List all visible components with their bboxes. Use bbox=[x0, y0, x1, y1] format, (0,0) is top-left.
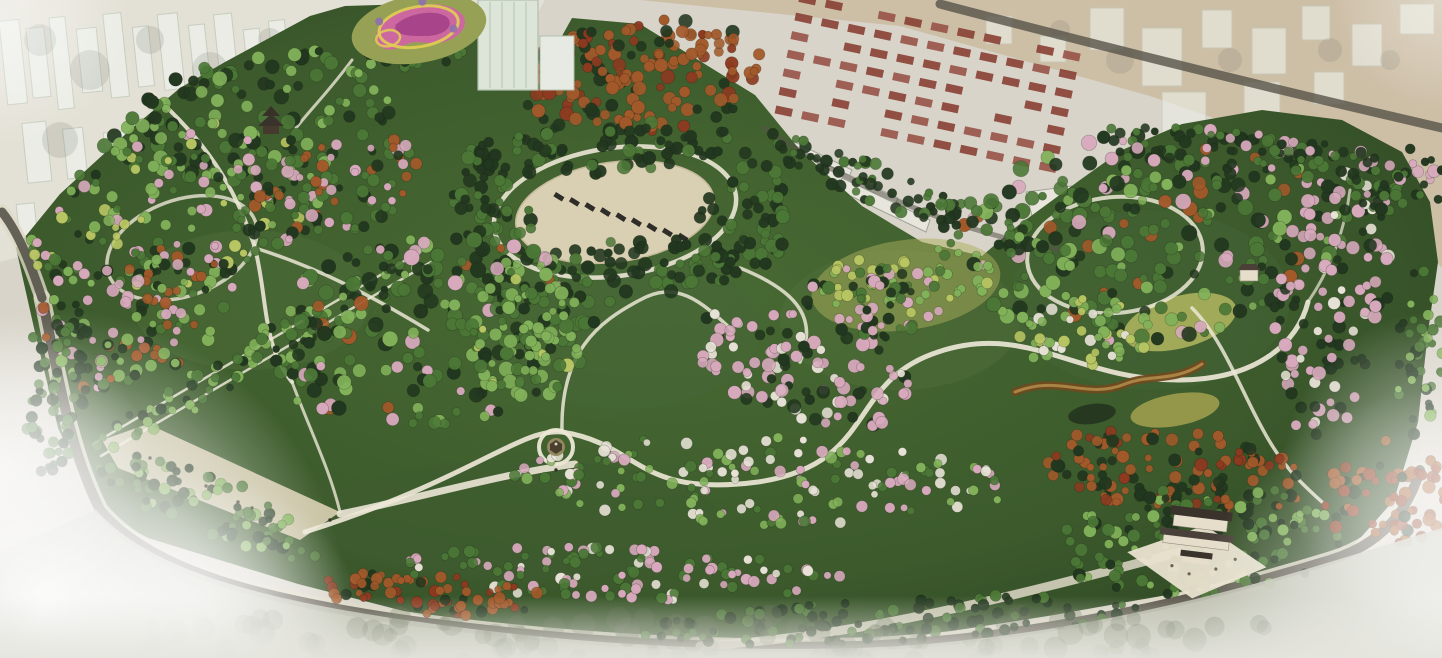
tree bbox=[1110, 176, 1125, 191]
tree bbox=[1088, 309, 1097, 318]
tree bbox=[386, 413, 399, 426]
tree bbox=[808, 485, 818, 495]
tree bbox=[1218, 253, 1233, 268]
tree bbox=[514, 295, 521, 302]
tree bbox=[1251, 213, 1266, 228]
tree bbox=[727, 44, 736, 53]
tree bbox=[1046, 275, 1061, 290]
tree bbox=[254, 190, 266, 202]
tree bbox=[541, 331, 551, 341]
tree bbox=[583, 63, 593, 73]
tree bbox=[846, 316, 853, 323]
tree bbox=[228, 283, 237, 292]
tree bbox=[1382, 292, 1393, 303]
tree bbox=[450, 233, 462, 245]
tree bbox=[1194, 251, 1205, 262]
tree bbox=[857, 295, 865, 303]
tree bbox=[1049, 231, 1063, 245]
tree bbox=[363, 245, 373, 255]
tree bbox=[416, 577, 426, 587]
tree bbox=[1072, 215, 1087, 230]
tree bbox=[1005, 240, 1013, 248]
tree bbox=[1380, 252, 1393, 265]
tree bbox=[1169, 471, 1181, 483]
tree bbox=[111, 147, 120, 156]
tree bbox=[955, 249, 963, 257]
tree bbox=[982, 277, 993, 288]
tree bbox=[816, 164, 825, 173]
tree bbox=[1058, 176, 1068, 186]
tree bbox=[799, 516, 810, 527]
tree bbox=[493, 567, 503, 577]
tree bbox=[711, 361, 722, 372]
tree bbox=[1122, 433, 1131, 442]
tree bbox=[863, 306, 872, 315]
tree bbox=[1025, 191, 1039, 205]
tree bbox=[1062, 524, 1073, 535]
tree bbox=[281, 165, 294, 178]
tree bbox=[1177, 312, 1187, 322]
tree bbox=[99, 237, 107, 245]
tree bbox=[1046, 303, 1058, 315]
tree bbox=[1298, 346, 1308, 356]
tree bbox=[935, 468, 945, 478]
tree bbox=[354, 69, 363, 78]
tree bbox=[1123, 153, 1132, 162]
hill-pavilion bbox=[1238, 264, 1260, 281]
tree bbox=[207, 119, 217, 129]
tree bbox=[172, 259, 183, 270]
tree bbox=[800, 437, 807, 444]
tree bbox=[1258, 274, 1269, 285]
tree bbox=[637, 544, 648, 555]
tree bbox=[526, 223, 536, 233]
tree bbox=[316, 362, 325, 371]
tree bbox=[711, 252, 721, 262]
tree bbox=[1094, 265, 1107, 278]
tree bbox=[833, 166, 845, 178]
tree bbox=[435, 571, 447, 583]
tree bbox=[686, 498, 697, 509]
tree bbox=[768, 310, 779, 321]
tree bbox=[1330, 151, 1340, 161]
tree bbox=[1117, 450, 1130, 463]
tree bbox=[1052, 452, 1061, 461]
tree bbox=[1165, 242, 1178, 255]
tree bbox=[89, 221, 101, 233]
tree bbox=[1073, 446, 1083, 456]
tree bbox=[776, 238, 789, 251]
tree bbox=[137, 216, 144, 223]
tree bbox=[618, 454, 630, 466]
tree bbox=[707, 203, 719, 215]
tree bbox=[1002, 185, 1017, 200]
tree bbox=[659, 15, 669, 25]
tree bbox=[748, 576, 759, 587]
tree bbox=[310, 176, 321, 187]
tree bbox=[229, 133, 244, 148]
tree bbox=[1141, 124, 1150, 133]
tree bbox=[531, 375, 541, 385]
tree bbox=[265, 60, 279, 74]
tree bbox=[382, 402, 394, 414]
tree bbox=[767, 128, 778, 139]
tree bbox=[1255, 130, 1263, 138]
tree bbox=[370, 581, 379, 590]
tree bbox=[188, 76, 198, 86]
tree bbox=[287, 368, 298, 379]
tree bbox=[1076, 574, 1085, 583]
tree bbox=[185, 171, 197, 183]
tree bbox=[286, 235, 293, 242]
tree bbox=[1289, 301, 1299, 311]
tree bbox=[540, 472, 551, 483]
tree bbox=[923, 267, 934, 278]
tree bbox=[509, 470, 520, 481]
tree bbox=[743, 209, 753, 219]
tree bbox=[340, 212, 353, 225]
tree bbox=[1162, 495, 1170, 503]
tree bbox=[1132, 142, 1144, 154]
tree bbox=[402, 353, 413, 364]
ghost-building bbox=[1252, 28, 1286, 74]
tree bbox=[745, 499, 755, 509]
tree bbox=[1286, 225, 1299, 238]
tree bbox=[196, 204, 205, 213]
tree bbox=[289, 146, 298, 155]
tree bbox=[332, 401, 347, 416]
tree bbox=[1302, 171, 1314, 183]
tree bbox=[368, 196, 377, 205]
tree bbox=[1116, 148, 1124, 156]
tree bbox=[280, 115, 295, 130]
tree bbox=[532, 388, 541, 397]
tree bbox=[202, 286, 209, 293]
tree bbox=[259, 238, 268, 247]
tree bbox=[930, 208, 938, 216]
tree bbox=[947, 239, 955, 247]
tree bbox=[848, 412, 858, 422]
tree bbox=[702, 554, 711, 563]
tree bbox=[692, 254, 701, 263]
tree bbox=[1108, 351, 1117, 360]
tree bbox=[762, 358, 776, 372]
tree bbox=[1071, 557, 1081, 567]
tree bbox=[1359, 228, 1367, 236]
tree bbox=[524, 206, 533, 215]
tree bbox=[1021, 272, 1029, 280]
tree bbox=[507, 239, 521, 253]
tree bbox=[1083, 156, 1097, 170]
tree bbox=[901, 504, 908, 511]
tree bbox=[521, 366, 530, 375]
tree bbox=[986, 297, 1001, 312]
tree bbox=[865, 196, 875, 206]
tree bbox=[887, 189, 896, 198]
tree bbox=[824, 572, 831, 579]
tree bbox=[896, 294, 906, 304]
tree bbox=[288, 48, 302, 62]
tree bbox=[835, 149, 844, 158]
tree bbox=[303, 337, 314, 348]
tree bbox=[692, 62, 701, 71]
tree bbox=[516, 571, 524, 579]
tree bbox=[668, 103, 677, 112]
tree bbox=[1108, 456, 1117, 465]
tree bbox=[345, 277, 360, 292]
tree bbox=[856, 450, 865, 459]
tree bbox=[1154, 263, 1166, 275]
tree bbox=[452, 266, 462, 276]
tree bbox=[475, 339, 485, 349]
tree bbox=[1202, 144, 1211, 153]
tree bbox=[1360, 307, 1369, 316]
tree bbox=[753, 49, 765, 61]
tree bbox=[273, 346, 280, 353]
tree bbox=[561, 164, 572, 175]
tree bbox=[656, 83, 664, 91]
tree bbox=[126, 112, 139, 125]
tree bbox=[398, 159, 408, 169]
tree bbox=[220, 200, 227, 207]
tree bbox=[1279, 338, 1293, 352]
tree bbox=[907, 178, 914, 185]
tree bbox=[604, 249, 612, 257]
tree bbox=[1186, 129, 1195, 138]
tree bbox=[182, 242, 195, 255]
tree bbox=[728, 570, 736, 578]
tree bbox=[549, 308, 556, 315]
tree bbox=[1369, 300, 1381, 312]
tree bbox=[1277, 140, 1287, 150]
tree bbox=[423, 265, 432, 274]
tree bbox=[1247, 457, 1258, 468]
tree bbox=[519, 324, 529, 334]
tree bbox=[336, 185, 343, 192]
tree bbox=[781, 341, 792, 352]
tree bbox=[760, 258, 772, 270]
tree bbox=[131, 312, 141, 322]
tree bbox=[876, 281, 885, 290]
tree bbox=[1192, 176, 1206, 190]
tree bbox=[397, 577, 404, 584]
tree bbox=[493, 407, 503, 417]
tree bbox=[1121, 165, 1132, 176]
tree bbox=[883, 264, 892, 273]
tree bbox=[113, 205, 121, 213]
tree bbox=[1390, 189, 1402, 201]
tree bbox=[440, 419, 450, 429]
tree bbox=[795, 162, 803, 170]
tree bbox=[333, 326, 346, 339]
tree bbox=[1102, 523, 1115, 536]
tree bbox=[157, 284, 166, 293]
tree bbox=[944, 212, 956, 224]
tree bbox=[1109, 135, 1120, 146]
tree bbox=[1333, 255, 1341, 263]
tree bbox=[1130, 204, 1141, 215]
tree bbox=[604, 268, 617, 281]
tree bbox=[1296, 355, 1304, 363]
tree bbox=[1044, 337, 1054, 347]
tree bbox=[779, 145, 787, 153]
tree bbox=[1244, 443, 1256, 455]
tree bbox=[486, 380, 497, 391]
tree bbox=[103, 215, 114, 226]
tree bbox=[606, 99, 618, 111]
tree bbox=[1294, 279, 1305, 290]
tree bbox=[1227, 159, 1237, 169]
tree bbox=[399, 190, 406, 197]
tree bbox=[698, 206, 706, 214]
tree bbox=[564, 543, 573, 552]
tree bbox=[1126, 335, 1135, 344]
tree bbox=[1119, 137, 1127, 145]
tree bbox=[664, 158, 675, 169]
tree bbox=[318, 144, 325, 151]
tree bbox=[739, 235, 748, 244]
tree bbox=[331, 139, 342, 150]
tree bbox=[699, 517, 708, 526]
tree bbox=[572, 344, 581, 353]
tree bbox=[525, 287, 537, 299]
tree bbox=[352, 258, 360, 266]
tree bbox=[474, 359, 488, 373]
tree bbox=[1190, 270, 1199, 279]
tree bbox=[291, 361, 299, 369]
tree bbox=[382, 331, 398, 347]
city-tree-smudge bbox=[1318, 38, 1342, 62]
tree bbox=[1097, 131, 1110, 144]
tree bbox=[1169, 454, 1181, 466]
tree bbox=[853, 469, 863, 479]
tree bbox=[1286, 282, 1295, 291]
tree bbox=[679, 86, 690, 97]
tree bbox=[401, 271, 409, 279]
tree bbox=[649, 276, 662, 289]
tree bbox=[330, 197, 338, 205]
tree bbox=[712, 241, 722, 251]
tree bbox=[315, 188, 323, 196]
tree bbox=[324, 56, 338, 70]
tree bbox=[839, 157, 850, 168]
tree bbox=[268, 221, 276, 229]
tree bbox=[265, 202, 275, 212]
tree bbox=[112, 224, 119, 231]
tree bbox=[782, 328, 792, 338]
city-tree-smudge bbox=[1218, 48, 1242, 72]
tree bbox=[1098, 470, 1107, 479]
tree bbox=[1183, 154, 1194, 165]
tree bbox=[120, 297, 131, 308]
tree bbox=[196, 271, 206, 281]
tree bbox=[315, 47, 323, 55]
tree bbox=[831, 265, 841, 275]
tree bbox=[1265, 174, 1276, 185]
tree bbox=[994, 240, 1004, 250]
tree bbox=[1380, 180, 1389, 189]
tree bbox=[1106, 435, 1119, 448]
tree bbox=[681, 438, 693, 450]
tree bbox=[336, 97, 344, 105]
tree bbox=[327, 154, 335, 162]
tree bbox=[686, 48, 698, 60]
tree bbox=[188, 224, 196, 232]
tree bbox=[366, 59, 376, 69]
tree bbox=[1124, 184, 1138, 198]
tree bbox=[843, 265, 851, 273]
tree bbox=[728, 386, 742, 400]
tree bbox=[542, 565, 550, 573]
tree bbox=[1204, 469, 1212, 477]
tree bbox=[1149, 171, 1161, 183]
tree bbox=[661, 125, 673, 137]
tree bbox=[1329, 192, 1341, 204]
tree bbox=[886, 365, 894, 373]
tree bbox=[305, 209, 318, 222]
tree bbox=[821, 418, 831, 428]
tree bbox=[1074, 482, 1084, 492]
tree bbox=[195, 117, 206, 128]
tree bbox=[513, 146, 522, 155]
tree bbox=[899, 257, 910, 268]
tree bbox=[594, 456, 601, 463]
tree bbox=[1299, 319, 1308, 328]
park-aerial-rendering bbox=[0, 0, 1442, 658]
tree bbox=[826, 178, 838, 190]
tree bbox=[1125, 464, 1136, 475]
tree bbox=[855, 268, 865, 278]
tree bbox=[713, 147, 723, 157]
tree bbox=[486, 589, 494, 597]
tree bbox=[532, 322, 544, 334]
tree bbox=[297, 277, 309, 289]
tree bbox=[1291, 370, 1299, 378]
tree bbox=[817, 345, 826, 354]
tree bbox=[286, 329, 298, 341]
tree bbox=[1304, 208, 1316, 220]
tree bbox=[772, 192, 784, 204]
tree bbox=[656, 265, 668, 277]
tree bbox=[666, 478, 677, 489]
tree bbox=[741, 393, 753, 405]
tree bbox=[798, 341, 809, 352]
tree bbox=[457, 387, 465, 395]
tree bbox=[651, 562, 662, 573]
tree bbox=[882, 168, 894, 180]
tree bbox=[286, 135, 296, 145]
tree bbox=[1226, 276, 1234, 284]
tree bbox=[592, 57, 602, 67]
tree bbox=[400, 140, 412, 152]
tree bbox=[606, 82, 619, 95]
tree bbox=[407, 384, 420, 397]
ghost-building bbox=[1202, 10, 1232, 48]
tree bbox=[790, 149, 797, 156]
tree bbox=[1297, 156, 1305, 164]
tree bbox=[557, 147, 567, 157]
tree bbox=[576, 500, 584, 508]
tree bbox=[743, 368, 752, 377]
tree bbox=[494, 175, 505, 186]
tree bbox=[1164, 153, 1174, 163]
tree bbox=[154, 179, 163, 188]
tree bbox=[501, 206, 512, 217]
tree bbox=[801, 480, 809, 488]
tree bbox=[406, 235, 416, 245]
tree bbox=[56, 212, 68, 224]
tree bbox=[1364, 191, 1371, 198]
